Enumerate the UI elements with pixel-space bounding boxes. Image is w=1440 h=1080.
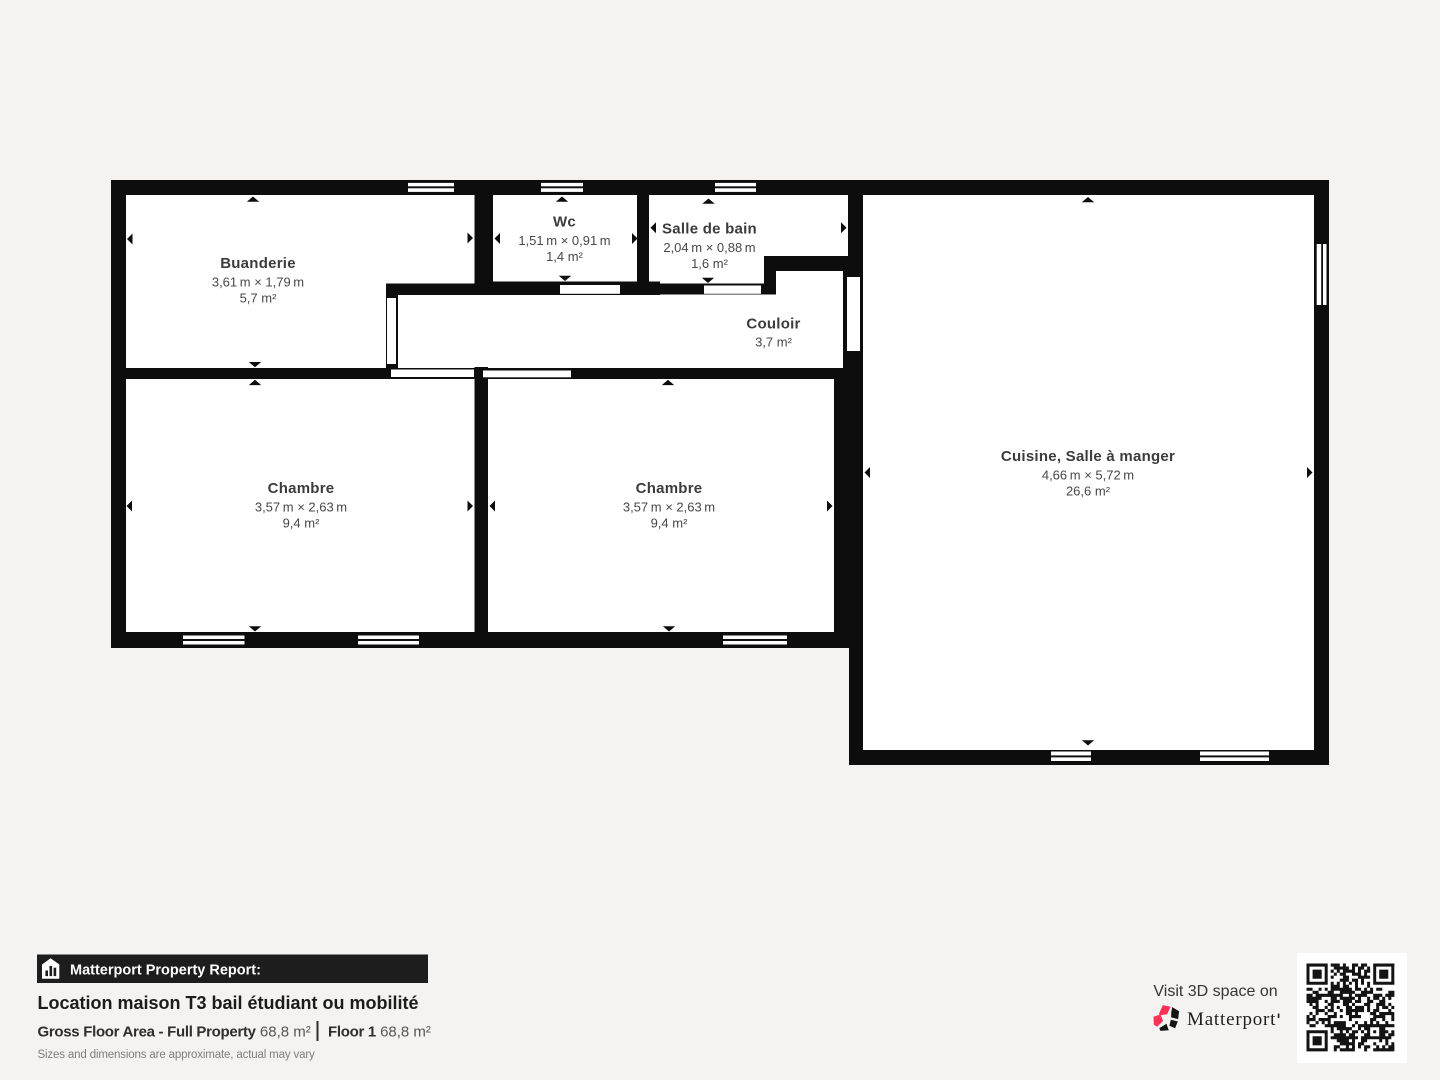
svg-text:1,4 m²: 1,4 m² [546, 249, 584, 264]
svg-text:26,6 m²: 26,6 m² [1066, 483, 1111, 498]
svg-text:3,57 m × 2,63 m: 3,57 m × 2,63 m [623, 500, 715, 515]
svg-text:3,61 m × 1,79 m: 3,61 m × 1,79 m [212, 275, 304, 290]
svg-text:Matterport: Matterport [1187, 1009, 1276, 1030]
svg-text:Chambre: Chambre [268, 480, 335, 497]
svg-text:3,7 m²: 3,7 m² [755, 335, 793, 350]
svg-text:9,4 m²: 9,4 m² [283, 516, 321, 531]
svg-text:Gross Floor Area - Full Proper: Gross Floor Area - Full Property 68,8 m² [38, 1024, 311, 1041]
svg-text:Location maison T3 bail étudia: Location maison T3 bail étudiant ou mobi… [38, 993, 419, 1013]
svg-text:Floor 1 68,8 m²: Floor 1 68,8 m² [328, 1024, 431, 1041]
svg-text:Chambre: Chambre [636, 480, 703, 497]
svg-text:Matterport Property Report:: Matterport Property Report: [70, 963, 261, 979]
svg-text:Salle de bain: Salle de bain [662, 221, 757, 238]
svg-text:2,04 m × 0,88 m: 2,04 m × 0,88 m [663, 240, 755, 255]
svg-text:Sizes and dimensions are appro: Sizes and dimensions are approximate, ac… [38, 1049, 316, 1061]
svg-text:Buanderie: Buanderie [220, 255, 296, 272]
svg-text:4,66 m × 5,72 m: 4,66 m × 5,72 m [1042, 467, 1134, 482]
svg-text:1,6 m²: 1,6 m² [691, 256, 729, 271]
svg-text:5,7 m²: 5,7 m² [240, 291, 278, 306]
svg-text:Wc: Wc [553, 213, 576, 230]
svg-text:9,4 m²: 9,4 m² [651, 516, 689, 531]
svg-text:Visit 3D space on: Visit 3D space on [1153, 983, 1277, 1000]
svg-text:3,57 m × 2,63 m: 3,57 m × 2,63 m [255, 500, 347, 515]
svg-text:Cuisine, Salle à manger: Cuisine, Salle à manger [1001, 448, 1175, 465]
svg-text:Couloir: Couloir [746, 316, 800, 333]
svg-text:1,51 m × 0,91 m: 1,51 m × 0,91 m [518, 233, 610, 248]
